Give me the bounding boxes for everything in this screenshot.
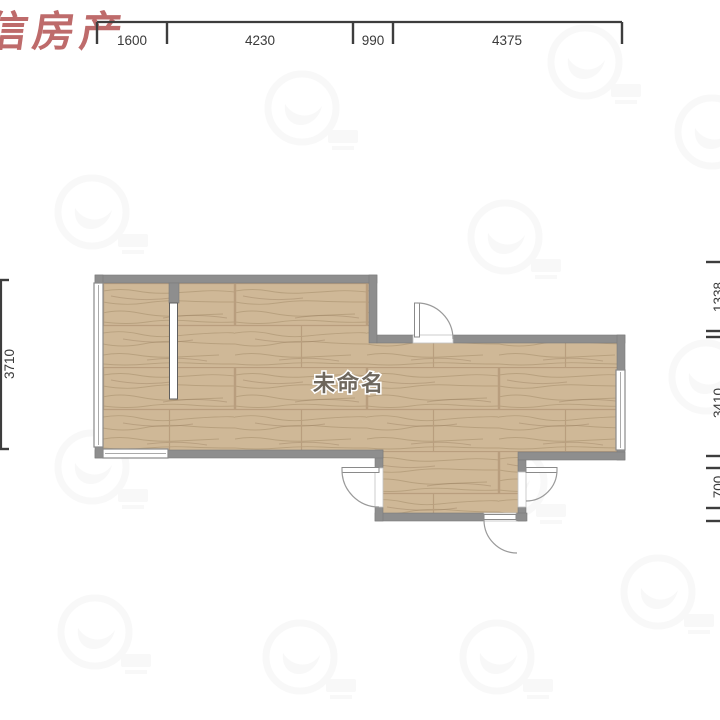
room-name-label[interactable]: 未命名 <box>313 371 385 396</box>
dimension-label: 1600 <box>117 33 147 48</box>
wall-stub <box>169 283 179 303</box>
brand-watermark-text: 信房产 <box>0 8 130 55</box>
door-opening <box>518 472 526 507</box>
wall-segment <box>375 507 383 521</box>
wall-segment <box>95 275 103 283</box>
dimension-label: 700 <box>711 476 720 499</box>
dimension-label: 4375 <box>492 33 522 48</box>
dimension-label: 990 <box>362 33 385 48</box>
wall-segment <box>168 450 383 458</box>
wall-segment <box>453 335 625 343</box>
wall-segment <box>617 335 625 370</box>
dimension-label: 1338 <box>711 282 720 312</box>
door-leaf <box>484 515 516 520</box>
dimension-label: 4230 <box>245 33 275 48</box>
interior-partition <box>170 303 178 399</box>
door-opening <box>375 468 383 507</box>
dimension-label: 3410 <box>711 388 720 418</box>
door-leaf <box>415 303 420 337</box>
wall-segment <box>518 460 526 472</box>
floor-plan-canvas: 信房产 1600 4230 990 4375 3710 1338 3410 70… <box>0 0 720 720</box>
door-leaf <box>526 468 557 473</box>
wall-segment <box>377 335 413 343</box>
wall-segment <box>95 447 103 458</box>
wall-segment <box>518 452 625 460</box>
wall-segment <box>95 275 377 283</box>
wall-segment <box>516 513 527 521</box>
dimension-label: 3710 <box>2 349 17 379</box>
door-leaf <box>342 468 379 473</box>
wall-segment <box>369 275 377 343</box>
wall-segment <box>375 513 484 521</box>
